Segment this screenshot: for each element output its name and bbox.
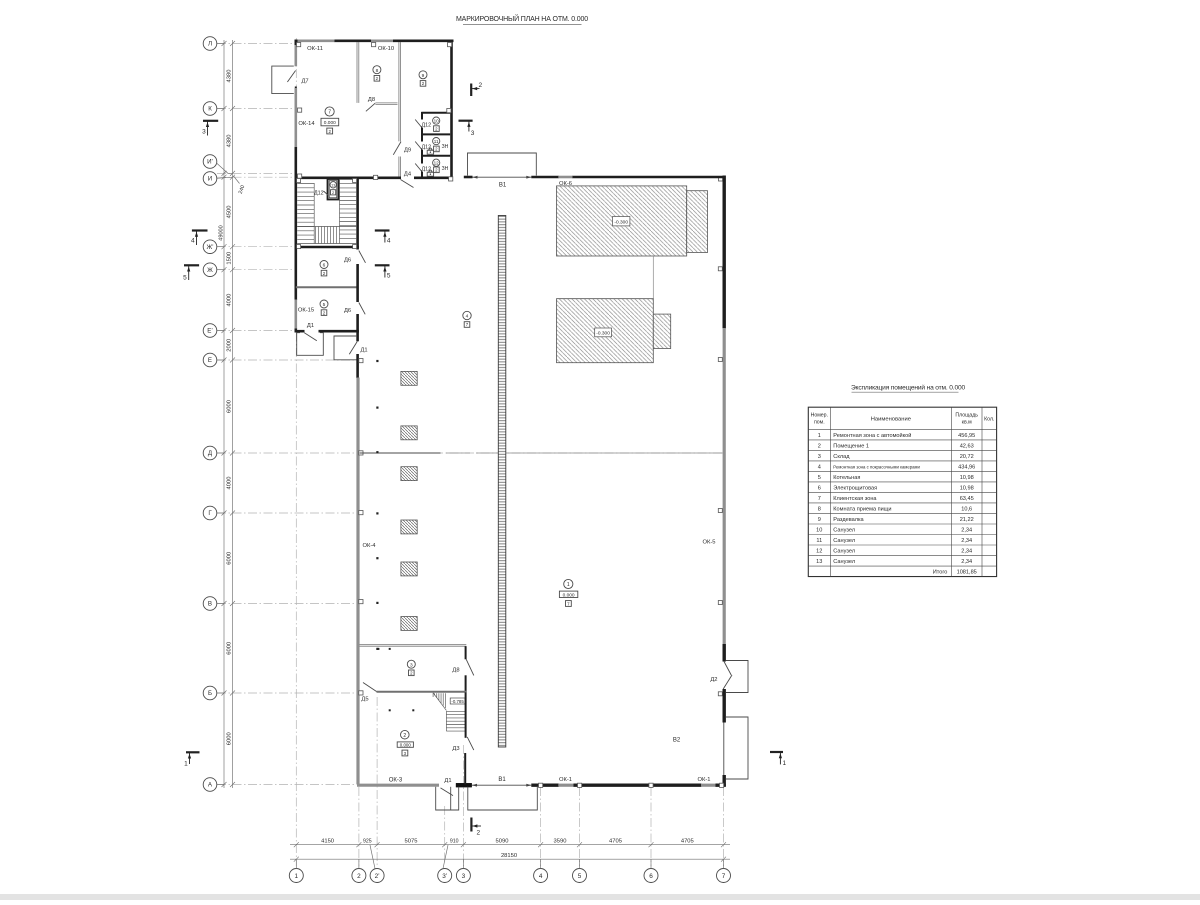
svg-text:434,96: 434,96 [958,464,975,470]
svg-text:7: 7 [818,496,821,502]
svg-text:Д7: Д7 [302,79,309,85]
svg-text:7: 7 [328,110,331,116]
svg-text:42,63: 42,63 [960,443,974,449]
svg-text:Экспликация помещений на отм.: Экспликация помещений на отм. 0.000 [851,384,966,392]
svg-text:ОК-3: ОК-3 [389,778,403,784]
svg-text:8: 8 [818,506,821,512]
svg-text:Комната приема пищи: Комната приема пищи [833,506,891,512]
svg-text:Д1: Д1 [444,778,451,784]
svg-text:2,34: 2,34 [961,559,972,565]
svg-text:1: 1 [295,873,299,880]
svg-text:ОК-4: ОК-4 [362,543,376,549]
svg-text:3: 3 [471,130,475,137]
svg-text:Санузел: Санузел [833,549,855,555]
svg-text:4: 4 [539,873,543,880]
svg-text:ОК-5: ОК-5 [702,540,715,546]
svg-text:Раздевалка: Раздевалка [833,517,864,523]
svg-text:3590: 3590 [554,838,567,844]
svg-text:5: 5 [387,273,391,280]
svg-text:Д9: Д9 [404,148,411,154]
svg-text:Номер.: Номер. [811,413,828,419]
svg-text:Д8: Д8 [368,97,375,103]
svg-text:ОК-1: ОК-1 [559,777,572,783]
svg-text:4380: 4380 [227,70,233,83]
svg-text:Д12: Д12 [422,123,432,129]
svg-text:И: И [208,176,212,183]
svg-text:2: 2 [403,733,406,739]
svg-text:12: 12 [434,161,440,166]
svg-text:6: 6 [649,873,653,880]
svg-text:Санузел: Санузел [833,538,855,544]
svg-text:8: 8 [376,68,379,74]
svg-text:Котельная: Котельная [833,475,860,481]
svg-text:3: 3 [818,454,821,460]
svg-text:1: 1 [184,761,188,768]
svg-text:ОК-10: ОК-10 [378,46,394,52]
svg-text:Санузел: Санузел [833,528,855,534]
svg-text:11: 11 [434,139,439,144]
svg-text:13: 13 [331,184,335,188]
svg-text:2,34: 2,34 [961,538,972,544]
svg-text:4: 4 [466,314,469,320]
svg-text:И’: И’ [207,159,213,166]
svg-text:5: 5 [323,302,326,308]
svg-text:Итого: Итого [933,570,948,576]
svg-text:4000: 4000 [227,294,233,307]
svg-text:Кол.: Кол. [984,417,994,423]
svg-text:6000: 6000 [227,400,233,413]
svg-text:1081,85: 1081,85 [957,570,977,576]
svg-text:925: 925 [363,838,372,844]
svg-text:ОК-15: ОК-15 [298,308,314,314]
svg-text:7: 7 [722,873,726,880]
svg-text:-0.300: -0.300 [596,331,610,337]
svg-text:2’: 2’ [375,873,381,880]
svg-text:10: 10 [434,119,440,124]
svg-text:6000: 6000 [227,552,233,565]
svg-text:5: 5 [818,475,821,481]
svg-text:Д4: Д4 [404,172,412,178]
svg-text:Помещение 1: Помещение 1 [833,443,869,449]
svg-text:ОК-14: ОК-14 [298,121,315,127]
svg-text:10,6: 10,6 [961,506,972,512]
svg-text:1: 1 [783,760,787,767]
svg-text:1: 1 [818,433,821,439]
svg-text:10,98: 10,98 [960,475,974,481]
svg-text:28150: 28150 [501,853,517,859]
svg-text:Д2: Д2 [710,677,717,683]
svg-text:5075: 5075 [405,838,418,844]
svg-text:К: К [208,106,212,113]
svg-text:Б: Б [208,690,212,697]
svg-text:10,98: 10,98 [960,485,974,491]
svg-text:Д12: Д12 [422,167,432,173]
svg-text:910: 910 [450,838,459,844]
svg-text:4: 4 [191,238,195,245]
svg-text:Д6: Д6 [344,308,351,314]
svg-text:Д6: Д6 [344,258,351,264]
svg-text:4: 4 [818,464,821,470]
svg-text:6: 6 [818,485,821,491]
svg-text:ЗН: ЗН [442,144,449,150]
svg-text:2: 2 [357,873,361,880]
svg-text:4000: 4000 [227,477,233,490]
svg-text:МАРКИРОВОЧНЫЙ ПЛАН НА ОТМ. 0.0: МАРКИРОВОЧНЫЙ ПЛАН НА ОТМ. 0.000 [456,14,588,23]
svg-text:ОК-11: ОК-11 [307,46,323,52]
svg-text:0.000: 0.000 [563,592,575,598]
svg-text:Ж: Ж [207,267,213,274]
svg-text:10: 10 [816,528,822,534]
svg-text:кв.м: кв.м [962,420,972,426]
svg-text:2000: 2000 [227,339,233,352]
svg-text:Д12: Д12 [314,191,324,197]
svg-text:21,22: 21,22 [960,517,974,523]
svg-text:Электрощитовая: Электрощитовая [833,485,877,491]
svg-text:2,34: 2,34 [961,549,972,555]
svg-text:12: 12 [816,549,822,555]
svg-text:5: 5 [183,275,187,282]
svg-text:1: 1 [567,582,570,588]
svg-text:2,34: 2,34 [961,528,972,534]
svg-text:Д1: Д1 [361,348,368,354]
svg-text:4: 4 [387,238,391,245]
svg-text:20,72: 20,72 [960,454,974,460]
svg-text:3: 3 [410,662,413,668]
svg-text:Склад: Склад [833,454,850,460]
svg-text:Д5: Д5 [361,697,368,703]
svg-text:ЗН: ЗН [442,166,449,172]
svg-text:0.000: 0.000 [324,120,336,126]
svg-text:В2: В2 [673,738,681,744]
svg-text:49000: 49000 [219,225,225,241]
svg-text:2: 2 [818,443,821,449]
svg-text:6000: 6000 [227,732,233,745]
svg-text:1500: 1500 [227,252,233,265]
svg-text:9: 9 [422,73,425,79]
svg-text:пом.: пом. [814,420,825,426]
svg-text:Д1: Д1 [307,323,314,329]
svg-text:-0.785: -0.785 [451,699,464,704]
svg-text:11: 11 [816,538,822,544]
svg-text:4380: 4380 [227,134,233,147]
svg-text:63,45: 63,45 [960,496,974,502]
svg-text:4150: 4150 [321,838,334,844]
svg-text:0.000: 0.000 [400,742,412,747]
svg-text:Клиентская зона: Клиентская зона [833,496,877,502]
svg-text:ОК-1: ОК-1 [697,777,710,783]
svg-text:Е’: Е’ [207,328,213,335]
svg-text:Ремонтная зона с покрасочными: Ремонтная зона с покрасочными камерами [833,464,920,469]
svg-text:Санузел: Санузел [833,559,855,565]
svg-text:Ж’: Ж’ [206,244,213,251]
svg-text:2: 2 [477,830,481,837]
svg-text:В1: В1 [498,777,506,783]
svg-text:6: 6 [323,263,326,269]
svg-text:6000: 6000 [227,642,233,655]
svg-text:2: 2 [479,82,483,89]
svg-text:4500: 4500 [227,205,233,218]
svg-text:В1: В1 [499,183,507,189]
svg-text:456,95: 456,95 [958,433,975,439]
svg-text:Л: Л [208,41,212,48]
svg-text:Ремонтная зона с автомойкой: Ремонтная зона с автомойкой [833,432,911,439]
svg-text:4705: 4705 [609,838,622,844]
svg-text:3: 3 [462,873,466,880]
svg-text:Наименование: Наименование [871,417,911,423]
svg-text:9: 9 [818,517,821,523]
svg-text:5090: 5090 [496,838,509,844]
svg-text:5: 5 [578,873,582,880]
svg-text:В: В [208,601,212,608]
svg-text:Д12: Д12 [422,145,432,151]
svg-text:13: 13 [816,559,822,565]
svg-text:3’: 3’ [442,873,448,880]
svg-text:Д8: Д8 [452,668,459,674]
svg-text:Е: Е [208,357,212,364]
svg-text:-0.300: -0.300 [614,220,628,226]
svg-text:Д3: Д3 [452,746,459,752]
svg-text:4705: 4705 [681,838,694,844]
svg-text:3: 3 [202,129,206,136]
svg-text:Площадь: Площадь [955,413,978,419]
